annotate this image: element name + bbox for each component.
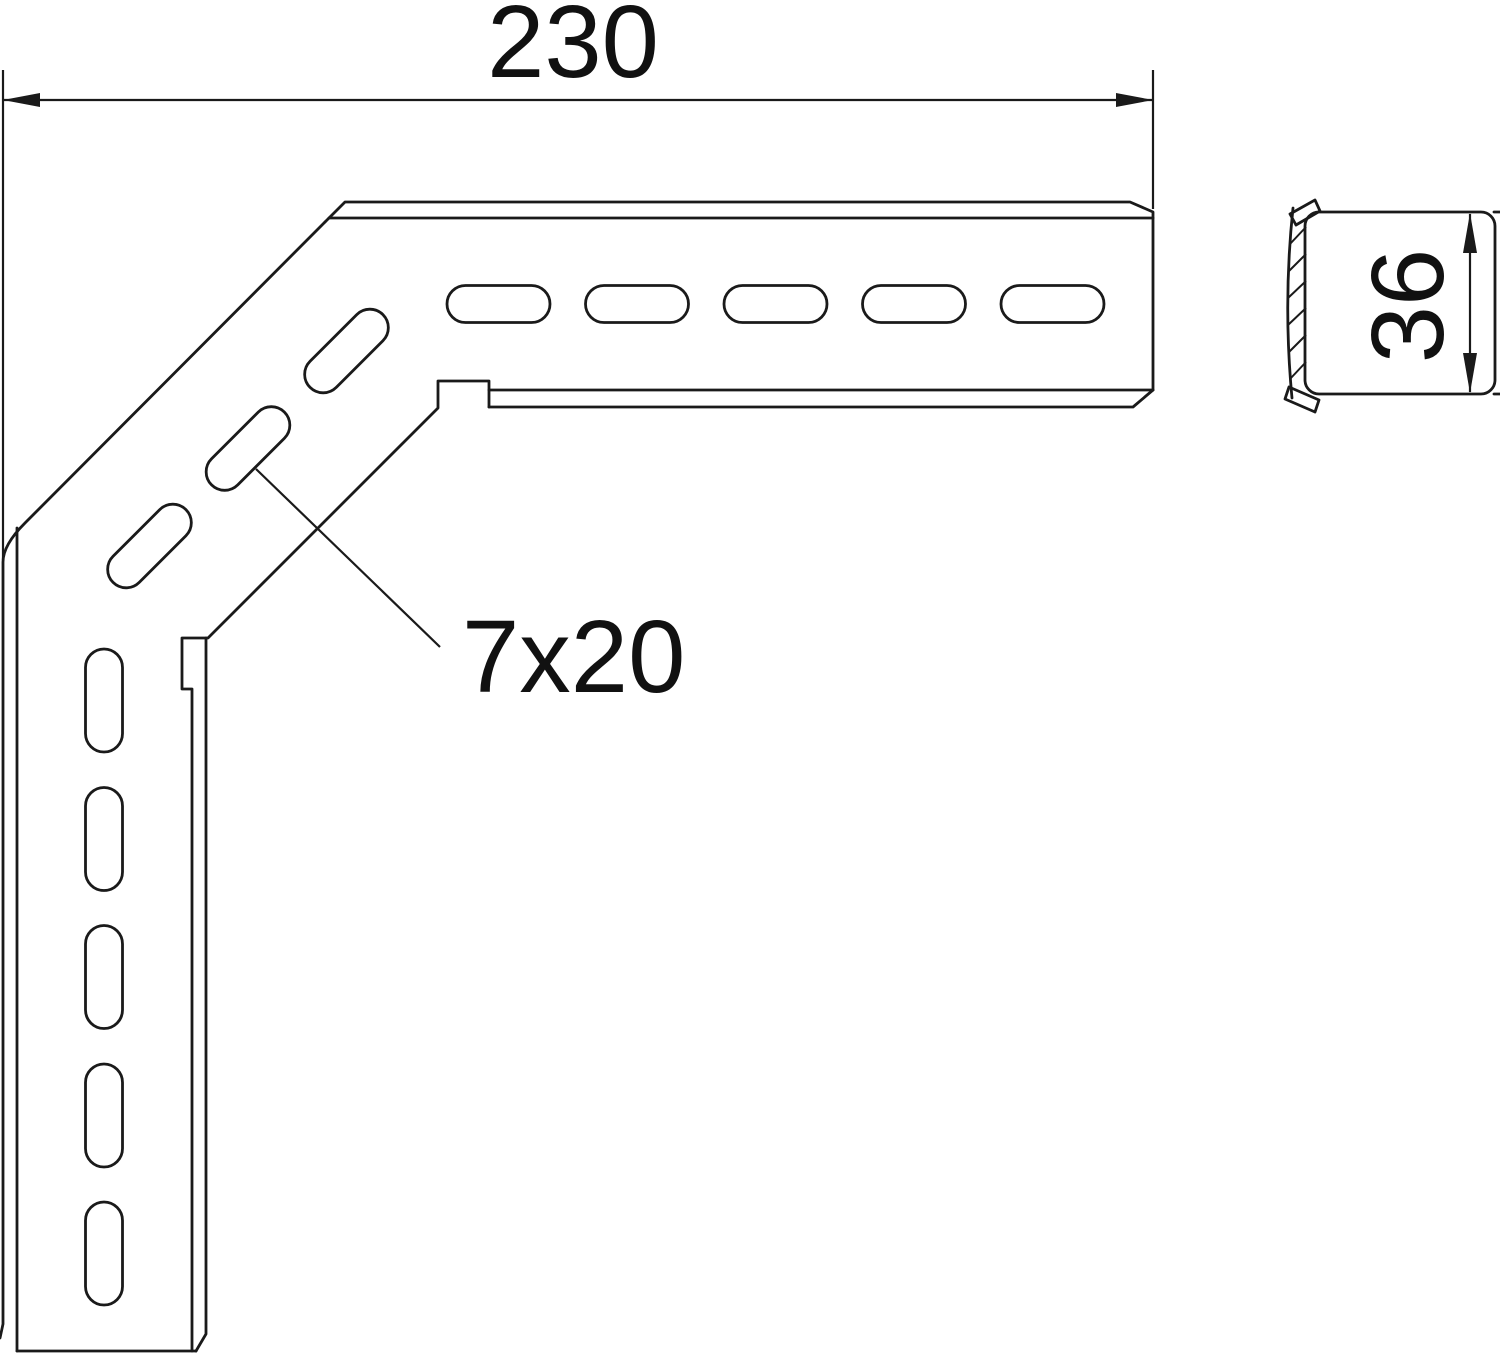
slot-horizontal-2 bbox=[586, 286, 689, 323]
slot-diagonal-3 bbox=[297, 302, 396, 401]
slot-diagonal-2 bbox=[199, 399, 298, 498]
hatch-line bbox=[1288, 281, 1306, 298]
slot-vertical-5 bbox=[86, 1202, 123, 1305]
slot-horizontal-5 bbox=[1001, 286, 1104, 323]
slot-vertical-4 bbox=[86, 1064, 123, 1167]
slot-horizontal-4 bbox=[863, 286, 966, 323]
slot-vertical-3 bbox=[86, 926, 123, 1029]
slots-horizontal bbox=[447, 286, 1104, 323]
front-view-bracket bbox=[0, 202, 1153, 1351]
hatch-line bbox=[1289, 335, 1306, 352]
slots-diagonal bbox=[100, 302, 396, 596]
hatch-line bbox=[1289, 254, 1306, 271]
bracket-inner-edge bbox=[182, 381, 489, 1351]
technical-drawing: 230 7x20 36 bbox=[0, 0, 1500, 1355]
slot-horizontal-3 bbox=[724, 286, 827, 323]
bracket-lip-bottom bbox=[489, 390, 1153, 407]
profile-flange-outer-edge bbox=[1288, 208, 1293, 398]
drawing-canvas: 230 7x20 36 bbox=[0, 0, 1500, 1355]
slot-diagonal-1 bbox=[100, 497, 199, 596]
arrowhead-right-icon bbox=[1116, 93, 1153, 107]
slot-horizontal-1 bbox=[447, 286, 550, 323]
arrowhead-left-icon bbox=[3, 93, 40, 107]
dimension-width-label: 230 bbox=[487, 0, 659, 99]
dimension-width: 230 bbox=[3, 0, 1153, 560]
leader-line bbox=[256, 469, 440, 647]
dimension-height-label: 36 bbox=[1350, 249, 1465, 364]
slot-vertical-1 bbox=[86, 649, 123, 752]
bracket-lip-right-vertical bbox=[196, 638, 206, 1351]
slot-vertical-2 bbox=[86, 788, 123, 891]
slot-size-label: 7x20 bbox=[462, 599, 685, 714]
hatch-line bbox=[1288, 308, 1306, 325]
slots-vertical bbox=[86, 649, 123, 1305]
bracket-outer-diagonal-edge bbox=[0, 222, 325, 1338]
slot-size-callout: 7x20 bbox=[256, 469, 685, 714]
